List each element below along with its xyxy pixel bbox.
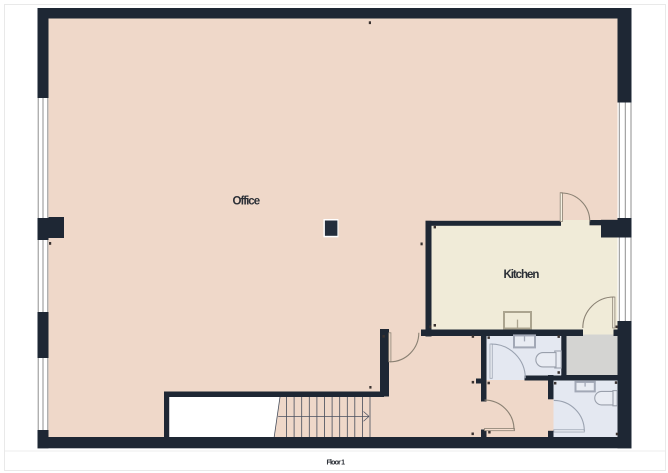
svg-text:Floor 1: Floor 1 [327, 459, 346, 466]
svg-text:Office: Office [233, 195, 260, 207]
svg-text:Kitchen: Kitchen [503, 269, 539, 281]
